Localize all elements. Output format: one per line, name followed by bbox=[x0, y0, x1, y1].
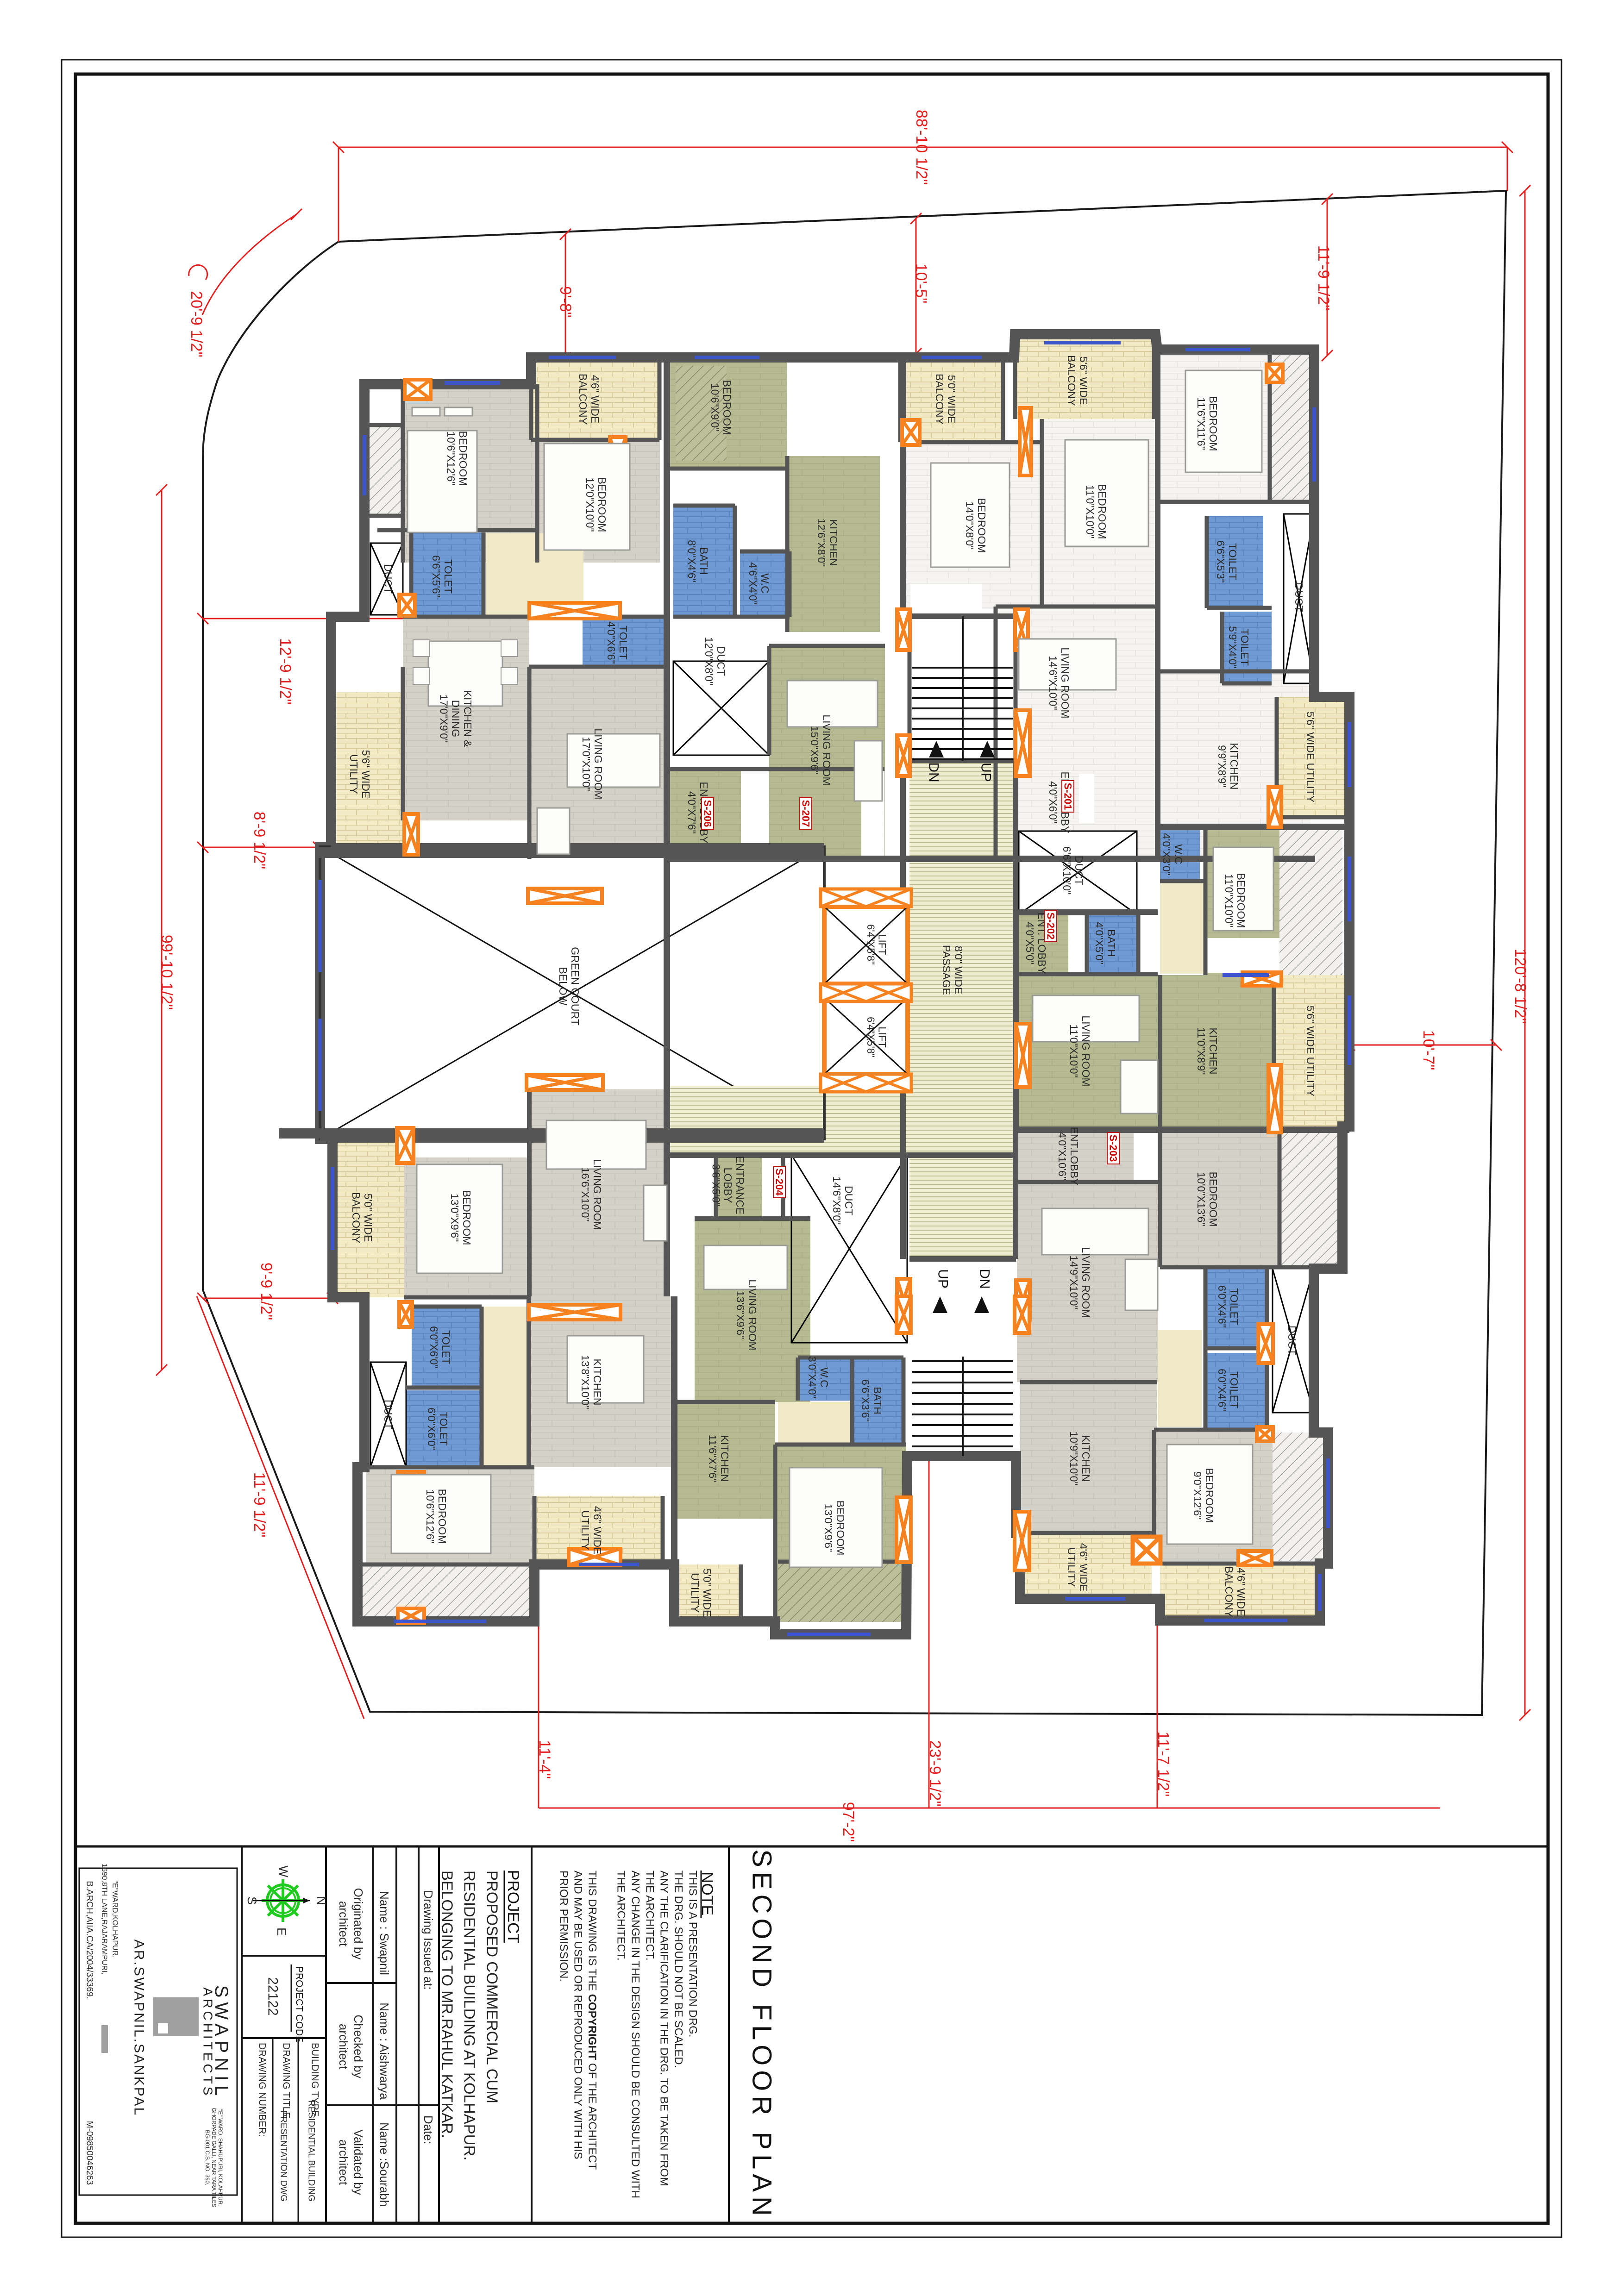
svg-text:KITCHEN: KITCHEN bbox=[719, 1435, 731, 1482]
svg-text:6'4"X5'8": 6'4"X5'8" bbox=[865, 924, 877, 965]
svg-text:DUCT: DUCT bbox=[382, 564, 394, 594]
svg-text:4'6" WIDE: 4'6" WIDE bbox=[1235, 1568, 1247, 1616]
svg-text:120'-8 1/2": 120'-8 1/2" bbox=[1511, 949, 1529, 1024]
svg-text:W.C: W.C bbox=[759, 573, 771, 593]
svg-text:N: N bbox=[314, 1896, 328, 1905]
svg-text:BEDROOM: BEDROOM bbox=[976, 498, 988, 553]
svg-text:88'-10 1/2": 88'-10 1/2" bbox=[913, 110, 930, 185]
svg-text:BEDROOM: BEDROOM bbox=[461, 1190, 473, 1245]
svg-text:11'-9 1/2": 11'-9 1/2" bbox=[1315, 245, 1332, 311]
svg-text:S-206: S-206 bbox=[702, 800, 714, 827]
svg-text:DUCT: DUCT bbox=[382, 1400, 394, 1429]
svg-text:ANY CHANGE IN THE DESIGN SHOUL: ANY CHANGE IN THE DESIGN SHOULD BE CONSU… bbox=[629, 1871, 642, 2198]
svg-text:PROPOSED COMMERCIAL CUM: PROPOSED COMMERCIAL CUM bbox=[484, 1871, 501, 2103]
svg-text:DN: DN bbox=[926, 762, 941, 782]
svg-text:S-203: S-203 bbox=[1108, 1135, 1119, 1162]
svg-text:THIS DRAWING IS THE COPYRIGHT: THIS DRAWING IS THE COPYRIGHT OF THE ARC… bbox=[586, 1871, 599, 2170]
svg-text:architect: architect bbox=[337, 1901, 351, 1947]
svg-text:"E" WARD, SHAHUPURI, KOLAHPUR.: "E" WARD, SHAHUPURI, KOLAHPUR. bbox=[217, 2109, 224, 2206]
svg-text:14'0"X8'0": 14'0"X8'0" bbox=[964, 501, 976, 550]
svg-text:99'-10 1/2": 99'-10 1/2" bbox=[158, 935, 176, 1010]
svg-text:B.ARCH,AIIA.CA/2004/33369.: B.ARCH,AIIA.CA/2004/33369. bbox=[85, 1881, 94, 1999]
svg-text:KITCHEN: KITCHEN bbox=[1228, 743, 1240, 790]
svg-text:6'6"X10'0": 6'6"X10'0" bbox=[1061, 846, 1073, 895]
svg-text:AR.SWAPNIL.SANKPAL: AR.SWAPNIL.SANKPAL bbox=[132, 1939, 147, 2116]
svg-text:SECOND FLOOR PLAN: SECOND FLOOR PLAN bbox=[747, 1849, 777, 2221]
svg-text:Name : Swapnil: Name : Swapnil bbox=[377, 1891, 391, 1975]
svg-text:10'6"X12'6": 10'6"X12'6" bbox=[445, 431, 457, 485]
svg-text:UTILITY: UTILITY bbox=[689, 1573, 701, 1613]
svg-text:17'0"X10'0": 17'0"X10'0" bbox=[580, 737, 592, 791]
svg-text:BEDROOM: BEDROOM bbox=[596, 477, 608, 532]
svg-text:architect: architect bbox=[337, 2024, 351, 2070]
svg-text:Date:: Date: bbox=[421, 2115, 435, 2144]
svg-text:LIVING ROOM: LIVING ROOM bbox=[591, 1159, 603, 1230]
svg-text:BALCONY: BALCONY bbox=[1223, 1566, 1235, 1617]
svg-text:DUCT: DUCT bbox=[715, 646, 727, 676]
svg-text:10'6"X12'6": 10'6"X12'6" bbox=[424, 1489, 436, 1543]
svg-text:97'-2": 97'-2" bbox=[840, 1802, 857, 1842]
svg-text:12'6"X8'0": 12'6"X8'0" bbox=[815, 519, 828, 567]
svg-text:BATH: BATH bbox=[698, 547, 710, 575]
svg-text:5'6" WIDE: 5'6" WIDE bbox=[1078, 357, 1090, 405]
svg-text:4'6" WIDE: 4'6" WIDE bbox=[589, 375, 601, 424]
svg-text:13'0"X9'6": 13'0"X9'6" bbox=[449, 1194, 461, 1242]
svg-text:BEDROOM: BEDROOM bbox=[721, 380, 733, 435]
svg-text:Name :Sourabh: Name :Sourabh bbox=[377, 2122, 391, 2207]
svg-text:S-204: S-204 bbox=[774, 1169, 785, 1196]
svg-text:11'0"X10'0": 11'0"X10'0" bbox=[1223, 874, 1235, 927]
svg-text:5'6" WIDE UTILITY: 5'6" WIDE UTILITY bbox=[1304, 1006, 1317, 1097]
svg-text:LIVING ROOM: LIVING ROOM bbox=[1080, 1015, 1092, 1086]
svg-text:THIS IS A PRESENTATION DRG.: THIS IS A PRESENTATION DRG. bbox=[687, 1871, 699, 2038]
svg-text:10'-7": 10'-7" bbox=[1420, 1030, 1437, 1070]
svg-text:TOILET: TOILET bbox=[1227, 543, 1239, 580]
svg-text:Drawing Issued at:: Drawing Issued at: bbox=[421, 1890, 435, 1989]
svg-text:BALCONY: BALCONY bbox=[350, 1192, 362, 1243]
svg-text:6'6"X3'6": 6'6"X3'6" bbox=[859, 1379, 872, 1422]
svg-text:6'6"X5'6": 6'6"X5'6" bbox=[430, 555, 442, 598]
svg-text:BELOW: BELOW bbox=[557, 967, 569, 1005]
svg-text:W.C: W.C bbox=[818, 1367, 830, 1387]
svg-text:BALCONY: BALCONY bbox=[577, 374, 589, 425]
svg-text:RESIDENTIAL BUILDING AT KOLHAP: RESIDENTIAL BUILDING AT KOLHAPUR. bbox=[461, 1871, 478, 2161]
svg-text:BALCONY: BALCONY bbox=[934, 374, 946, 425]
svg-text:6'0"X6'0": 6'0"X6'0" bbox=[426, 1408, 438, 1450]
svg-text:4'6" WIDE: 4'6" WIDE bbox=[1078, 1543, 1090, 1592]
svg-text:4'0"X6'0": 4'0"X6'0" bbox=[1047, 781, 1059, 824]
svg-text:Checked by: Checked by bbox=[351, 2014, 365, 2078]
svg-text:11'0"X10'0": 11'0"X10'0" bbox=[1084, 485, 1096, 538]
svg-text:LIFT: LIFT bbox=[877, 1026, 888, 1047]
svg-text:23'-9 1/2": 23'-9 1/2" bbox=[926, 1740, 944, 1806]
svg-text:M-09850046263: M-09850046263 bbox=[85, 2121, 94, 2185]
svg-text:9'9"X8'9": 9'9"X8'9" bbox=[1216, 745, 1228, 788]
svg-text:6'6"X5'3": 6'6"X5'3" bbox=[1215, 540, 1227, 583]
svg-text:DUCT: DUCT bbox=[1286, 1326, 1298, 1355]
svg-text:AND MAY BE USED OR REPRODUCED: AND MAY BE USED OR REPRODUCED ONLY WITH … bbox=[572, 1871, 584, 2159]
svg-text:LIVING ROOM: LIVING ROOM bbox=[1080, 1247, 1092, 1318]
svg-text:11'0"X8'9": 11'0"X8'9" bbox=[1195, 1027, 1207, 1075]
svg-text:architect: architect bbox=[337, 2140, 351, 2185]
svg-text:10'0"X13'6": 10'0"X13'6" bbox=[1195, 1172, 1207, 1226]
svg-text:TOLET: TOLET bbox=[617, 626, 629, 660]
svg-text:KITCHEN: KITCHEN bbox=[1080, 1435, 1092, 1482]
svg-text:DN: DN bbox=[977, 1269, 992, 1289]
svg-text:9'-8": 9'-8" bbox=[557, 286, 574, 318]
svg-text:4'0"X5'0": 4'0"X5'0" bbox=[1024, 922, 1036, 964]
svg-text:LIVING ROOM: LIVING ROOM bbox=[821, 714, 833, 785]
svg-text:4'0"X5'0": 4'0"X5'0" bbox=[1093, 922, 1105, 964]
svg-text:6'4"X5'8": 6'4"X5'8" bbox=[865, 1017, 877, 1057]
svg-text:4'0"X10'6": 4'0"X10'6" bbox=[1056, 1132, 1068, 1180]
svg-text:4'0"X3'0": 4'0"X3'0" bbox=[1160, 833, 1173, 876]
svg-text:TOLET: TOLET bbox=[442, 559, 454, 594]
svg-text:20'-9 1/2": 20'-9 1/2" bbox=[188, 291, 205, 357]
svg-text:TOILET: TOILET bbox=[1228, 1371, 1240, 1408]
svg-text:10'9"X10'0": 10'9"X10'0" bbox=[1068, 1431, 1080, 1485]
svg-text:9'-9 1/2": 9'-9 1/2" bbox=[257, 1263, 275, 1320]
svg-text:4'0"X7'6": 4'0"X7'6" bbox=[686, 791, 698, 834]
svg-text:DRAWING NUMBER:: DRAWING NUMBER: bbox=[257, 2043, 268, 2137]
svg-text:THE DRG. SHOULD NOT BE SCALED.: THE DRG. SHOULD NOT BE SCALED. bbox=[672, 1871, 685, 2068]
svg-text:14'9"X10'0": 14'9"X10'0" bbox=[1068, 1255, 1080, 1309]
svg-text:"E"WARD,KOLHAPUR.: "E"WARD,KOLHAPUR. bbox=[111, 1880, 119, 1958]
svg-text:KITCHEN &: KITCHEN & bbox=[462, 690, 474, 747]
svg-text:ARCHITECTS: ARCHITECTS bbox=[201, 1988, 215, 2098]
svg-text:BEDROOM: BEDROOM bbox=[436, 1489, 448, 1544]
svg-text:15'0"X9'6": 15'0"X9'6" bbox=[809, 726, 821, 774]
svg-text:UTILITY: UTILITY bbox=[579, 1510, 591, 1550]
svg-text:S-207: S-207 bbox=[800, 800, 812, 827]
svg-text:TOILET: TOILET bbox=[1239, 629, 1251, 666]
svg-text:10'6"X9'0": 10'6"X9'0" bbox=[709, 383, 721, 432]
svg-text:4'6" WIDE: 4'6" WIDE bbox=[591, 1506, 603, 1555]
svg-text:LIVING ROOM: LIVING ROOM bbox=[1059, 647, 1071, 718]
svg-text:5'0" WIDE: 5'0" WIDE bbox=[701, 1569, 713, 1617]
svg-text:8'0"X4'6": 8'0"X4'6" bbox=[686, 540, 698, 582]
svg-text:UP: UP bbox=[935, 1269, 951, 1289]
svg-text:BEDROOM: BEDROOM bbox=[1207, 396, 1219, 451]
svg-text:KITCHEN: KITCHEN bbox=[591, 1359, 603, 1406]
svg-text:13'0"X9'6": 13'0"X9'6" bbox=[822, 1504, 834, 1552]
svg-text:DUCT: DUCT bbox=[843, 1186, 855, 1215]
svg-text:GHORPADE GALLI, NEAR TARA TILE: GHORPADE GALLI, NEAR TARA TILES bbox=[211, 2108, 217, 2207]
svg-text:Name : Aishwarya: Name : Aishwarya bbox=[377, 2002, 391, 2100]
svg-text:16'6"X10'0": 16'6"X10'0" bbox=[579, 1167, 591, 1221]
svg-text:11'-9 1/2": 11'-9 1/2" bbox=[251, 1472, 268, 1538]
svg-text:14'6"X8'0": 14'6"X8'0" bbox=[831, 1176, 843, 1225]
svg-text:TOILET: TOILET bbox=[1228, 1288, 1240, 1325]
svg-text:LIVING ROOM: LIVING ROOM bbox=[746, 1279, 759, 1350]
svg-text:PRESENTATION DWG: PRESENTATION DWG bbox=[279, 2110, 288, 2202]
svg-text:W.C: W.C bbox=[1173, 844, 1185, 864]
svg-text:11'-7 1/2": 11'-7 1/2" bbox=[1154, 1732, 1172, 1797]
svg-text:KITCHEN: KITCHEN bbox=[828, 519, 840, 566]
svg-text:6'0"X6'0": 6'0"X6'0" bbox=[428, 1326, 440, 1369]
svg-text:BEDROOM: BEDROOM bbox=[457, 431, 469, 486]
svg-text:LIVING ROOM: LIVING ROOM bbox=[592, 728, 604, 799]
svg-text:UP: UP bbox=[978, 763, 994, 782]
svg-text:KITCHEN: KITCHEN bbox=[1207, 1028, 1219, 1075]
svg-text:14'6"X10'0": 14'6"X10'0" bbox=[1047, 656, 1059, 710]
svg-text:11'0"X10'0": 11'0"X10'0" bbox=[1068, 1024, 1080, 1078]
svg-text:5'0" WIDE: 5'0" WIDE bbox=[362, 1194, 374, 1242]
svg-text:BEDROOM: BEDROOM bbox=[1207, 1172, 1219, 1227]
svg-text:12'0"X10'0": 12'0"X10'0" bbox=[584, 477, 596, 532]
svg-text:BEDROOM: BEDROOM bbox=[1096, 484, 1108, 539]
svg-text:5'6" WIDE UTILITY: 5'6" WIDE UTILITY bbox=[1304, 712, 1317, 803]
svg-text:5'0" WIDE: 5'0" WIDE bbox=[946, 375, 958, 424]
svg-text:S-202: S-202 bbox=[1045, 913, 1057, 940]
svg-text:BATH: BATH bbox=[872, 1387, 884, 1414]
svg-text:BG-001,C.S. NO. 390,: BG-001,C.S. NO. 390, bbox=[204, 2130, 211, 2185]
svg-text:4'0"X6'6": 4'0"X6'6" bbox=[605, 621, 617, 664]
svg-text:TOLET: TOLET bbox=[440, 1330, 452, 1364]
svg-text:RESIDENTIAL BUILDING: RESIDENTIAL BUILDING bbox=[307, 2100, 316, 2202]
svg-text:BALCONY: BALCONY bbox=[1066, 355, 1078, 406]
svg-text:THE ARCHITECT.: THE ARCHITECT. bbox=[615, 1871, 627, 1961]
svg-text:12'-9 1/2": 12'-9 1/2" bbox=[276, 638, 294, 704]
svg-text:PROJECT CODE: PROJECT CODE bbox=[294, 1966, 305, 2042]
svg-text:BATH: BATH bbox=[1105, 929, 1117, 957]
svg-text:UTILITY: UTILITY bbox=[1066, 1547, 1078, 1587]
svg-text:11'6"X7'6": 11'6"X7'6" bbox=[707, 1435, 719, 1483]
svg-text:8'0" WIDE: 8'0" WIDE bbox=[953, 946, 965, 995]
svg-text:Originated by: Originated by bbox=[351, 1888, 365, 1960]
svg-text:DUCT: DUCT bbox=[1073, 856, 1085, 885]
svg-text:9'0"X12'6": 9'0"X12'6" bbox=[1191, 1471, 1204, 1520]
svg-text:6'0"X4'6": 6'0"X4'6" bbox=[1216, 1369, 1228, 1411]
svg-text:DUCT: DUCT bbox=[1293, 582, 1305, 612]
svg-text:5'6" WIDE: 5'6" WIDE bbox=[360, 750, 372, 799]
svg-text:BEDROOM: BEDROOM bbox=[1204, 1468, 1216, 1523]
svg-text:UTILITY: UTILITY bbox=[348, 754, 360, 794]
svg-text:ENTRANCE: ENTRANCE bbox=[734, 1156, 746, 1215]
svg-text:DINING: DINING bbox=[450, 700, 462, 738]
svg-text:DRAWING TITLE: DRAWING TITLE bbox=[281, 2043, 292, 2118]
svg-text:W: W bbox=[276, 1865, 290, 1877]
svg-text:E: E bbox=[275, 1927, 288, 1936]
svg-text:GREEN COURT: GREEN COURT bbox=[569, 947, 581, 1026]
svg-text:Validated by: Validated by bbox=[351, 2129, 365, 2195]
svg-text:BELONGING TO MR.RAHUL KATKAR.: BELONGING TO MR.RAHUL KATKAR. bbox=[439, 1871, 456, 2138]
svg-text:TOLET: TOLET bbox=[438, 1412, 450, 1446]
svg-text:4'6"X4'0": 4'6"X4'0" bbox=[747, 562, 759, 605]
svg-text:8'-9 1/2": 8'-9 1/2" bbox=[251, 812, 268, 869]
svg-text:5'9"X4'0": 5'9"X4'0" bbox=[1227, 626, 1239, 669]
svg-text:1690,8TH LANE,RAJARAMPURI,: 1690,8TH LANE,RAJARAMPURI, bbox=[100, 1864, 108, 1975]
svg-text:BEDROOM: BEDROOM bbox=[834, 1501, 846, 1556]
svg-text:12'0"X8'0": 12'0"X8'0" bbox=[703, 637, 715, 685]
svg-text:LIFT: LIFT bbox=[877, 934, 888, 955]
svg-text:PRIOR PERMISSION.: PRIOR PERMISSION. bbox=[558, 1871, 570, 1982]
svg-text:PROJECT: PROJECT bbox=[504, 1870, 522, 1944]
svg-text:6'0"X4'6": 6'0"X4'6" bbox=[1216, 1285, 1228, 1328]
svg-text:ANY THE CLARIFICATION IN THE D: ANY THE CLARIFICATION IN THE DRG. TO BE … bbox=[658, 1871, 671, 2186]
svg-text:17'0"X9'0": 17'0"X9'0" bbox=[438, 694, 450, 743]
svg-text:S-201: S-201 bbox=[1062, 783, 1074, 810]
svg-text:LOBBY: LOBBY bbox=[722, 1168, 734, 1203]
svg-text:THE ARCHITECT.: THE ARCHITECT. bbox=[644, 1871, 656, 1961]
svg-text:ENT.LOBBY: ENT.LOBBY bbox=[1068, 1127, 1080, 1186]
svg-text:22122: 22122 bbox=[265, 1977, 281, 2015]
svg-text:S: S bbox=[245, 1896, 259, 1905]
svg-text:3'0"X4'0": 3'0"X4'0" bbox=[806, 1356, 818, 1399]
svg-text:BEDROOM: BEDROOM bbox=[1235, 873, 1247, 928]
svg-text:3'6"X5'0": 3'6"X5'0" bbox=[710, 1164, 722, 1207]
svg-text:11'-4": 11'-4" bbox=[536, 1740, 553, 1779]
svg-text:13'6"X9'6": 13'6"X9'6" bbox=[734, 1291, 746, 1339]
svg-text:11'6"X11'6": 11'6"X11'6" bbox=[1195, 397, 1207, 450]
svg-text:10'-5": 10'-5" bbox=[912, 263, 930, 304]
svg-text:PASSAGE: PASSAGE bbox=[941, 945, 953, 995]
svg-text:13'8"X10'0": 13'8"X10'0" bbox=[579, 1355, 591, 1409]
